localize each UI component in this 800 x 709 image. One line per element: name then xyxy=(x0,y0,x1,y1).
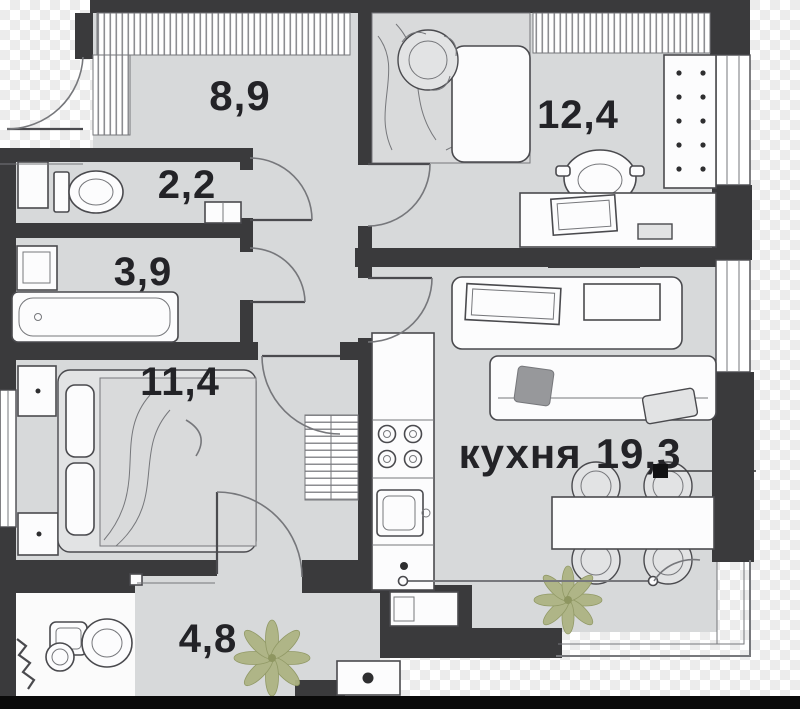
wall-kitchen-top xyxy=(355,248,717,267)
toilet-tank xyxy=(54,172,69,212)
area-marker-square xyxy=(653,464,668,478)
wall-bedroom-kitchen-divider xyxy=(358,362,372,585)
wall-right-block xyxy=(712,372,754,562)
wall-entrance-jamb xyxy=(75,13,93,59)
toilet-bowl xyxy=(69,171,123,213)
shaft-box xyxy=(18,162,48,208)
wall-bedroom2-stub xyxy=(358,226,372,248)
hallway-wardrobe xyxy=(97,13,350,55)
bed-pillow xyxy=(398,30,458,90)
floor-plan-image: 8,9 2,2 3,9 11,4 12,4 4,8 кухня19,3 xyxy=(0,0,800,709)
wall-corridor-c xyxy=(240,300,253,342)
bathtub xyxy=(12,292,178,342)
laptop xyxy=(551,195,617,235)
label-kitchen-area: 19,3 xyxy=(596,430,682,477)
pillow xyxy=(66,463,94,535)
corridor-floor xyxy=(253,148,358,342)
tv xyxy=(465,284,561,325)
plant xyxy=(534,566,602,634)
bedroom2-window xyxy=(716,55,750,185)
chair-armrest xyxy=(630,166,644,176)
wall-bedroom2-divider xyxy=(358,0,372,165)
wall-kitchen-door-jamb xyxy=(358,267,372,278)
wall-bathroom2-left xyxy=(0,593,13,696)
bedroom-door-opening xyxy=(258,342,340,360)
cabinet-handle xyxy=(400,562,408,570)
dining-table xyxy=(552,497,714,549)
wall-wc-top xyxy=(0,148,245,162)
wall-bathroom2-top xyxy=(0,576,135,593)
label-bedroom-area: 11,4 xyxy=(140,360,220,404)
label-wc-area: 2,2 xyxy=(158,163,217,207)
bookcase xyxy=(664,55,716,188)
plant xyxy=(234,620,310,696)
wall-top xyxy=(90,0,722,13)
label-kitchen-name: кухня xyxy=(459,430,582,477)
chair-armrest xyxy=(556,166,570,176)
kitchen-sink xyxy=(377,490,430,536)
bathroom2-door-opening xyxy=(135,576,217,593)
wall-corridor-a xyxy=(240,148,253,170)
wall-corridor-b xyxy=(240,218,253,252)
bedroom2-door-opening xyxy=(358,165,372,226)
wall-top-right-corner xyxy=(710,0,750,55)
pillow xyxy=(66,385,94,457)
hallway-wardrobe-side xyxy=(93,55,130,135)
wall-bedroom-bottom-a xyxy=(0,560,217,576)
letterbox-bar xyxy=(0,696,800,709)
kitchen-window xyxy=(716,260,750,372)
bedroom-south-door-opening xyxy=(217,560,302,593)
wc-door-opening xyxy=(240,170,253,218)
bed-duvet xyxy=(452,46,530,162)
wall-right-mid xyxy=(712,185,752,260)
sofa-pillow xyxy=(514,366,555,407)
bedroom2-wardrobe xyxy=(533,13,710,53)
bathroom-door-opening xyxy=(240,252,253,300)
label-kitchen: кухня19,3 xyxy=(459,430,682,477)
wall-wc-bath-divider xyxy=(13,223,245,238)
desk xyxy=(520,193,716,247)
label-bathroom-area: 3,9 xyxy=(114,250,173,294)
toilet-bowl xyxy=(82,619,132,667)
label-bedroom2-area: 12,4 xyxy=(537,93,619,137)
round-sink xyxy=(46,643,74,671)
floor-plan-svg: 8,9 2,2 3,9 11,4 12,4 4,8 кухня19,3 xyxy=(0,0,800,709)
wall-bottom xyxy=(380,628,562,658)
wall-tv xyxy=(548,258,640,268)
wall-bath-bottom xyxy=(0,342,258,360)
entrance-door-arc xyxy=(7,57,83,129)
label-hall-lower-area: 4,8 xyxy=(179,617,238,661)
desk-item xyxy=(638,224,672,239)
label-hallway-area: 8,9 xyxy=(209,72,270,119)
kitchen-door-opening xyxy=(358,278,372,338)
console-box xyxy=(584,284,660,320)
